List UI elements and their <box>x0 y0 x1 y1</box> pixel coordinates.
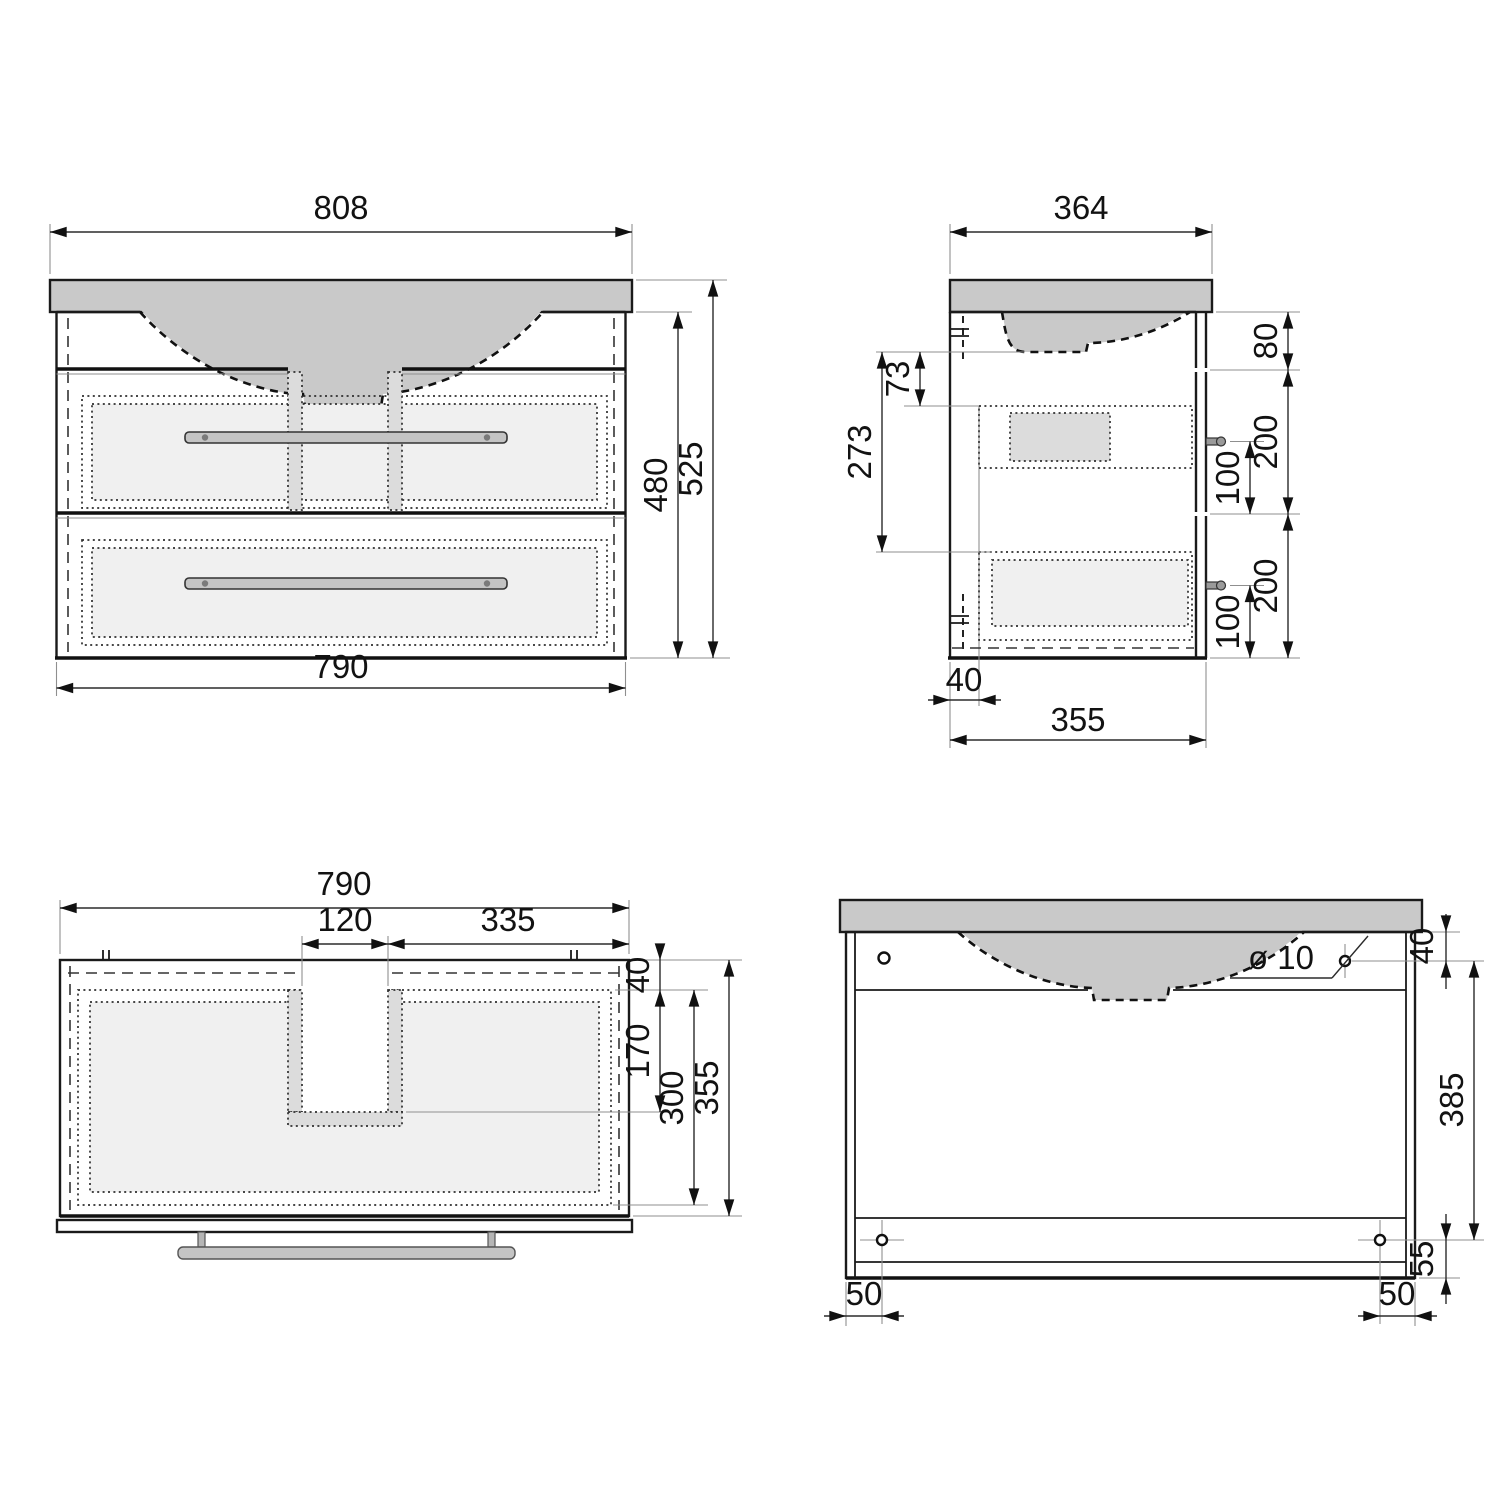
front-total-height-label: 525 <box>672 441 709 496</box>
top-siphon-channel <box>302 964 388 1112</box>
back-bottom-rail <box>855 1218 1406 1262</box>
back-top-right-hole <box>1340 944 1350 978</box>
back-washbasin-top <box>840 900 1422 932</box>
back-hole-left-inset-label: 50 <box>846 1275 883 1312</box>
back-view-geometry <box>840 900 1422 1324</box>
back-hole-bottom-offset-label: 55 <box>1403 1241 1440 1278</box>
front-basin-bowl <box>140 309 543 407</box>
top-wall-bracket-left <box>103 950 109 960</box>
back-top-left-hole <box>879 953 890 964</box>
top-inner-depth-label: 300 <box>653 1070 690 1125</box>
front-view-geometry <box>50 280 632 658</box>
back-hole-right-inset-label: 50 <box>1379 1275 1416 1312</box>
front-lower-drawer <box>82 540 607 645</box>
back-mount-spacing-label: 385 <box>1433 1072 1470 1127</box>
front-bottom-width-label: 790 <box>313 648 368 685</box>
back-view: ø 10 40 385 55 50 50 <box>824 900 1484 1326</box>
vanity-technical-drawing-page: 808 790 480 525 <box>0 0 1500 1500</box>
side-view: 364 80 200 100 200 100 73 273 <box>841 189 1300 748</box>
side-view-geometry <box>948 280 1226 706</box>
side-basin-bowl <box>1002 309 1190 352</box>
top-drawer-handle <box>178 1232 515 1259</box>
front-washbasin-top <box>50 280 632 312</box>
front-lower-drawer-handle <box>185 578 507 589</box>
front-view: 808 790 480 525 <box>50 189 730 696</box>
side-wall-bracket-bottom <box>950 594 969 650</box>
back-hole-diameter-label: ø 10 <box>1248 939 1314 976</box>
side-back-clearance-label: 40 <box>946 661 983 698</box>
top-total-depth-label: 355 <box>688 1060 725 1115</box>
side-top-section-label: 80 <box>1247 323 1284 360</box>
side-lower-drawer-label: 200 <box>1247 558 1284 613</box>
side-washbasin-top <box>950 280 1212 312</box>
top-right-section-label: 335 <box>480 901 535 938</box>
front-top-width-label: 808 <box>313 189 368 226</box>
side-upper-knob <box>1206 437 1226 446</box>
side-lower-knob <box>1206 581 1226 590</box>
side-basin-clearance-label: 73 <box>879 361 916 398</box>
top-view-geometry <box>57 950 632 1259</box>
side-top-depth-label: 364 <box>1053 189 1108 226</box>
top-width-label: 790 <box>316 865 371 902</box>
side-lower-drawer-box <box>979 552 1192 640</box>
side-inner-depth-label: 273 <box>841 424 878 479</box>
side-view-dimensions: 364 80 200 100 200 100 73 273 <box>841 189 1300 748</box>
technical-drawing: 808 790 480 525 <box>0 0 1500 1500</box>
back-hole-top-offset-label: 40 <box>1403 928 1440 965</box>
side-upper-drawer-box <box>979 406 1192 468</box>
side-body-depth-label: 355 <box>1050 701 1105 738</box>
side-upper-handle-label: 100 <box>1209 450 1246 505</box>
front-upper-drawer-handle <box>185 432 507 443</box>
front-body-height-label: 480 <box>637 457 674 512</box>
side-upper-drawer-label: 200 <box>1247 414 1284 469</box>
top-cutout-depth-label: 170 <box>619 1023 656 1078</box>
top-wall-bracket-right <box>571 950 577 960</box>
top-back-offset-label: 40 <box>619 957 656 994</box>
top-cutout-width-label: 120 <box>317 901 372 938</box>
top-drawer-front-panel <box>57 1220 632 1232</box>
side-lower-handle-label: 100 <box>1209 594 1246 649</box>
top-view: 790 120 335 40 170 300 355 <box>57 865 742 1259</box>
side-wall-bracket-top <box>950 316 969 362</box>
